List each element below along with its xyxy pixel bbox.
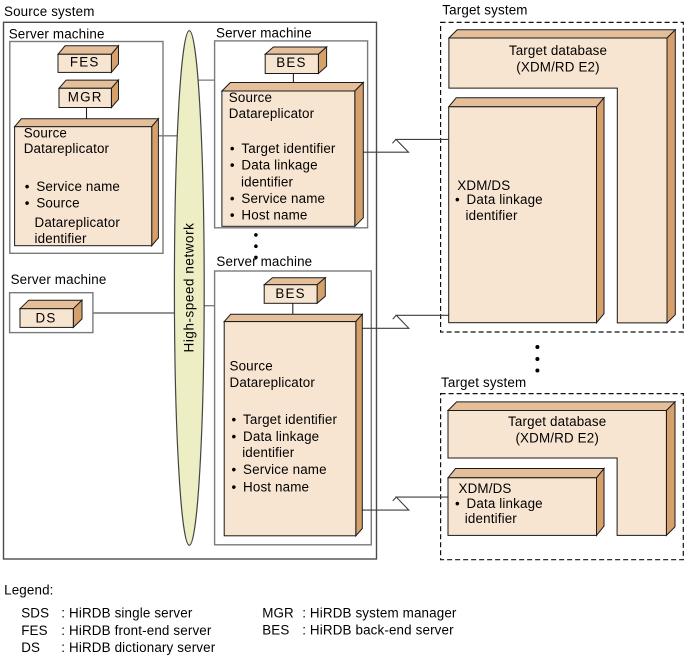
- svg-text:Target database: Target database: [509, 43, 607, 58]
- svg-text:: HiRDB dictionary server: : HiRDB dictionary server: [61, 640, 215, 655]
- svg-text:High-speed network: High-speed network: [182, 223, 197, 353]
- svg-text:Server machine: Server machine: [9, 27, 105, 42]
- svg-text:Legend:: Legend:: [4, 583, 53, 598]
- svg-text:Source: Source: [24, 126, 67, 141]
- svg-text:Target database: Target database: [508, 414, 606, 429]
- svg-text:identifier: identifier: [35, 231, 88, 246]
- svg-text:identifier: identifier: [241, 174, 294, 189]
- svg-text:BES: BES: [275, 286, 305, 301]
- svg-text:• Target identifier: • Target identifier: [230, 141, 336, 156]
- svg-text:Server machine: Server machine: [216, 254, 312, 269]
- svg-text:: HiRDB back-end server: : HiRDB back-end server: [302, 623, 454, 638]
- svg-text:BES: BES: [262, 623, 289, 638]
- svg-text:Datareplicator: Datareplicator: [230, 375, 316, 390]
- svg-text:• Host name: • Host name: [232, 479, 310, 494]
- svg-text:• Data linkage: • Data linkage: [455, 192, 543, 207]
- svg-text:XDM/DS: XDM/DS: [459, 481, 512, 496]
- svg-text:• Source: • Source: [25, 196, 80, 211]
- svg-text:: HiRDB front-end server: : HiRDB front-end server: [61, 623, 212, 638]
- svg-text:SDS: SDS: [21, 605, 49, 620]
- svg-text:DS: DS: [21, 640, 40, 655]
- svg-text:: HiRDB single server: : HiRDB single server: [61, 605, 193, 620]
- svg-text:Target system: Target system: [441, 375, 526, 390]
- svg-text:identifier: identifier: [466, 208, 519, 223]
- svg-text:identifier: identifier: [242, 445, 295, 460]
- svg-text:DS: DS: [35, 311, 56, 326]
- svg-text:• Data linkage: • Data linkage: [232, 429, 320, 444]
- svg-text:• Service name: • Service name: [232, 462, 327, 477]
- svg-text:Datareplicator: Datareplicator: [229, 106, 315, 121]
- svg-text:Target system: Target system: [442, 3, 527, 18]
- svg-text:BES: BES: [276, 55, 306, 70]
- svg-text:FES: FES: [70, 55, 100, 70]
- svg-text:• Service name: • Service name: [230, 191, 325, 206]
- svg-text:Datareplicator: Datareplicator: [24, 141, 110, 156]
- svg-text:(XDM/RD E2): (XDM/RD E2): [516, 59, 600, 74]
- svg-text:Source system: Source system: [4, 4, 95, 19]
- svg-text:Source: Source: [229, 90, 272, 105]
- svg-text:Server machine: Server machine: [216, 25, 312, 40]
- svg-text:MGR: MGR: [68, 89, 103, 104]
- svg-text:FES: FES: [21, 623, 48, 638]
- svg-text:: HiRDB system manager: : HiRDB system manager: [302, 605, 457, 620]
- svg-text:• Host name: • Host name: [230, 208, 308, 223]
- svg-text:MGR: MGR: [262, 605, 294, 620]
- svg-text:• Service name: • Service name: [25, 179, 120, 194]
- svg-text:(XDM/RD E2): (XDM/RD E2): [515, 431, 599, 446]
- svg-text:Server machine: Server machine: [11, 272, 107, 287]
- svg-text:Source: Source: [230, 359, 273, 374]
- svg-text:identifier: identifier: [465, 511, 518, 526]
- svg-text:• Target identifier: • Target identifier: [232, 412, 338, 427]
- svg-text:Datareplicator: Datareplicator: [35, 215, 121, 230]
- svg-text:• Data linkage: • Data linkage: [230, 158, 318, 173]
- svg-text:• Data linkage: • Data linkage: [455, 496, 543, 511]
